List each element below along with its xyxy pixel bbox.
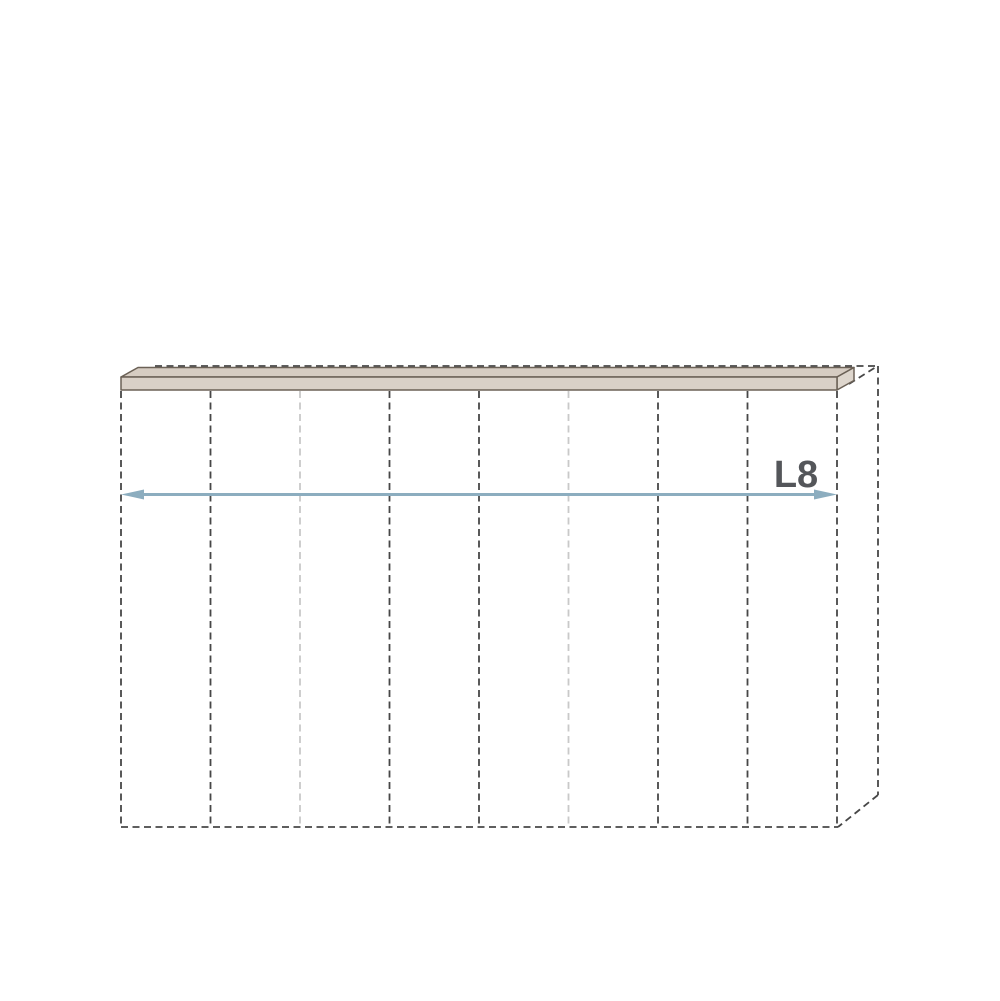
outline-bottom-right-diagonal: [838, 795, 878, 827]
wardrobe-outline: [121, 366, 878, 827]
dimension-arrowhead-left: [121, 490, 144, 500]
top-panel-front-face[interactable]: [121, 377, 837, 390]
configurator-canvas: L8: [0, 0, 1000, 1001]
top-panel-top-face[interactable]: [121, 368, 854, 378]
dimension-label: L8: [774, 454, 818, 496]
top-panel[interactable]: [121, 368, 854, 391]
wardrobe-diagram: L8: [0, 0, 1000, 1001]
